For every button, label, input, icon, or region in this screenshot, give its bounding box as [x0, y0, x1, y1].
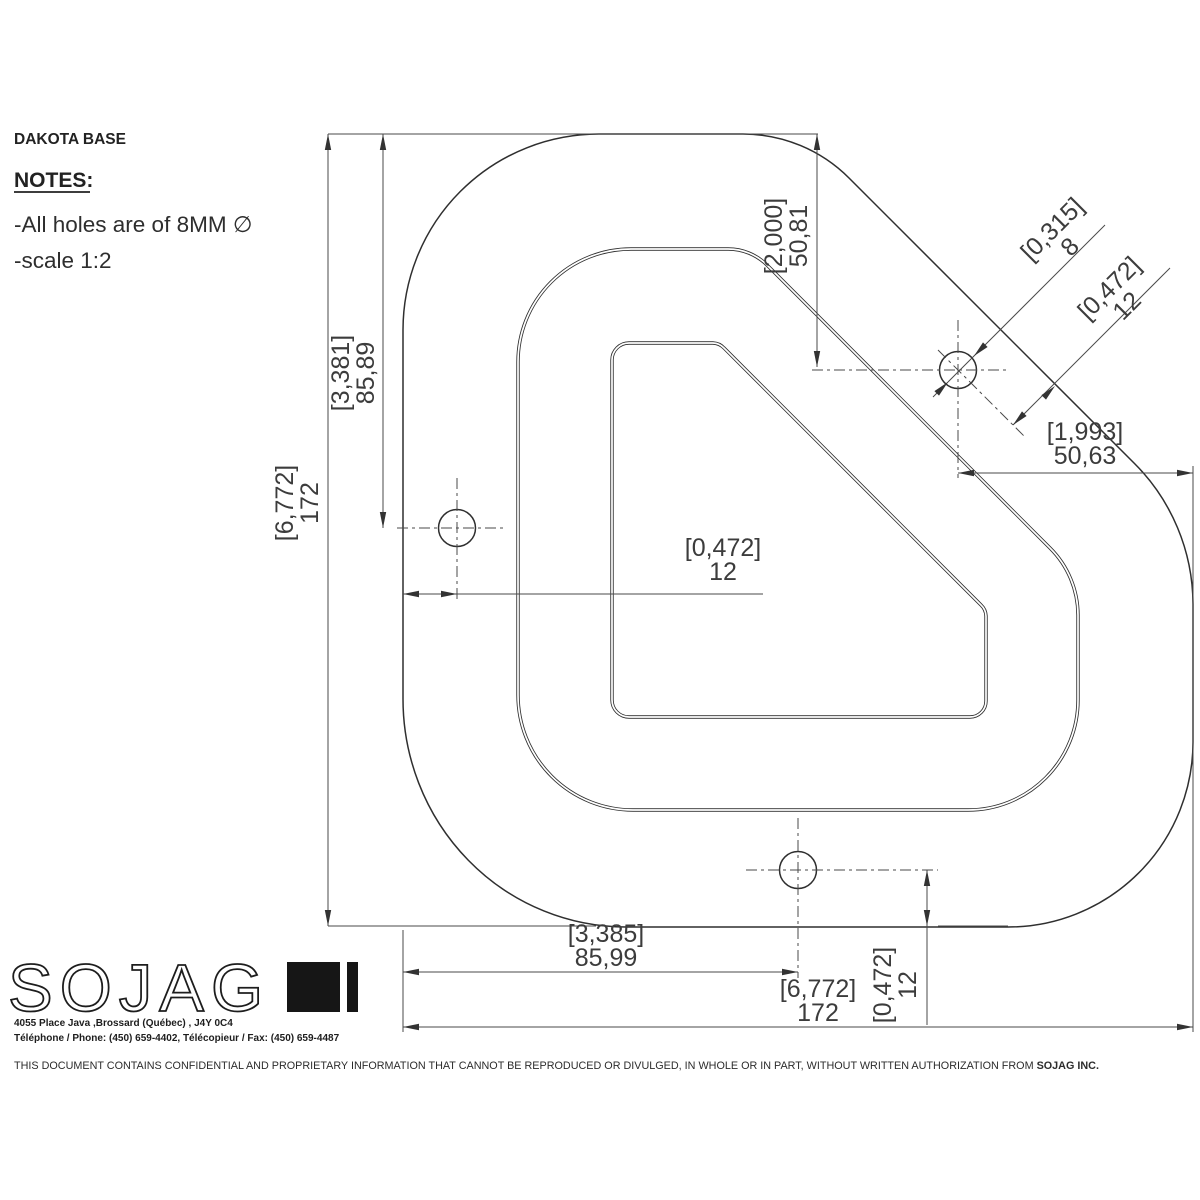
company-address: 4055 Place Java ,Brossard (Québec) , J4Y…: [14, 1018, 233, 1029]
svg-text:12: 12: [894, 971, 922, 999]
svg-text:[2,000]: [2,000]: [760, 198, 788, 274]
dim-top-hole-edge-offset-label: [0,472] 12: [1072, 251, 1164, 343]
svg-text:85,89: 85,89: [352, 342, 380, 405]
svg-text:50,63: 50,63: [1054, 442, 1117, 470]
note-scale: -scale 1:2: [14, 248, 112, 273]
middle-contour: [518, 249, 1078, 810]
svg-text:[3,381]: [3,381]: [327, 335, 355, 411]
notes-heading: NOTES:: [14, 169, 93, 192]
svg-text:172: 172: [296, 482, 324, 524]
inner-contour: [612, 343, 986, 717]
svg-text:50,81: 50,81: [785, 205, 813, 268]
dim-bottom-hole-from-left-label: [3,385] 85,99: [568, 920, 644, 972]
confidentiality-note: THIS DOCUMENT CONTAINS CONFIDENTIAL AND …: [14, 1060, 1099, 1072]
dim-top-hole-from-right-label: [1,993] 50,63: [1047, 418, 1123, 470]
dim-overall-height-label: [6,772] 172: [271, 465, 324, 541]
dimension-labels: [6,772] 172 [3,381] 85,89 [2,000] 50,81 …: [271, 192, 1164, 1027]
svg-text:12: 12: [709, 558, 737, 586]
svg-text:172: 172: [797, 999, 839, 1027]
logo-square-mark: [287, 962, 340, 1012]
title-block: DAKOTA BASE NOTES: -All holes are of 8MM…: [14, 131, 252, 273]
dim-left-hole-from-top-label: [3,381] 85,89: [327, 335, 380, 411]
technical-drawing-canvas: DAKOTA BASE NOTES: -All holes are of 8MM…: [0, 0, 1200, 1200]
drawing-sheet: DAKOTA BASE NOTES: -All holes are of 8MM…: [0, 0, 1200, 1200]
svg-text:8: 8: [1055, 232, 1085, 262]
dim-hole-diameter-label: [0,315] 8: [1015, 192, 1107, 284]
dim-top-hole-from-top-label: [2,000] 50,81: [760, 198, 813, 274]
footer: THIS DOCUMENT CONTAINS CONFIDENTIAL AND …: [14, 1060, 1099, 1072]
note-holes: -All holes are of 8MM ∅: [14, 212, 252, 237]
dim-bottom-hole-from-edge-label: [0,472] 12: [869, 947, 922, 1023]
dim-left-hole-from-edge-label: [0,472] 12: [685, 534, 761, 586]
footer-company-name: SOJAG INC.: [1037, 1060, 1099, 1072]
svg-text:[0,472]: [0,472]: [869, 947, 897, 1023]
company-phone-fax: Téléphone / Phone: (450) 659-4402, Téléc…: [14, 1033, 340, 1044]
centerlines: [397, 320, 1026, 978]
sojag-logo-text: SOJAG: [8, 951, 270, 1026]
page-title: DAKOTA BASE: [14, 131, 126, 148]
svg-text:85,99: 85,99: [575, 944, 638, 972]
dim-overall-width-label: [6,772] 172: [780, 975, 856, 1027]
svg-text:[6,772]: [6,772]: [271, 465, 299, 541]
dimension-arrows: [325, 134, 1193, 1030]
logo-block: SOJAG 4055 Place Java ,Brossard (Québec)…: [8, 951, 358, 1044]
logo-bar-mark: [347, 962, 358, 1012]
